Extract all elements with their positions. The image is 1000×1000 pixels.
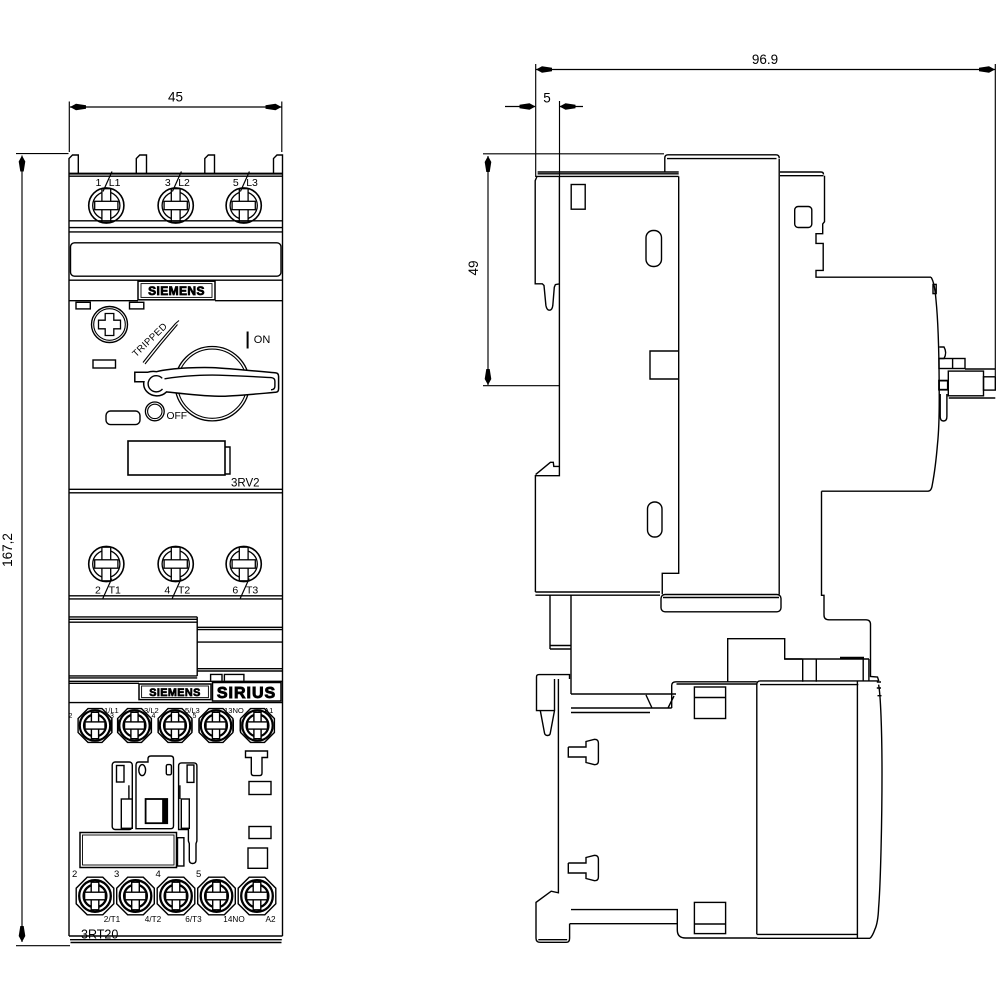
svg-text:3: 3: [165, 177, 171, 189]
svg-text:5: 5: [543, 91, 551, 106]
svg-text:L1: L1: [109, 177, 121, 189]
svg-text:2/T1: 2/T1: [104, 915, 121, 924]
svg-text:5: 5: [193, 713, 197, 720]
svg-text:L3: L3: [246, 177, 258, 189]
svg-text:SIEMENS: SIEMENS: [149, 687, 200, 699]
svg-text:6/T3: 6/T3: [185, 915, 202, 924]
svg-text:4: 4: [156, 869, 161, 880]
svg-text:5: 5: [233, 177, 239, 189]
svg-text:T1: T1: [109, 585, 121, 597]
svg-text:96.9: 96.9: [752, 52, 778, 67]
svg-text:167,2: 167,2: [0, 533, 15, 567]
svg-text:6: 6: [232, 585, 238, 597]
svg-text:45: 45: [168, 90, 183, 105]
svg-text:SIRIUS: SIRIUS: [217, 685, 276, 702]
svg-text:T3: T3: [246, 585, 258, 597]
svg-text:A2: A2: [265, 915, 275, 924]
svg-text:ON: ON: [254, 334, 271, 346]
svg-text:SIEMENS: SIEMENS: [148, 284, 205, 298]
svg-text:49: 49: [466, 260, 481, 275]
svg-text:2: 2: [95, 585, 101, 597]
svg-text:3: 3: [114, 869, 119, 880]
svg-text:4: 4: [152, 713, 156, 720]
svg-text:2: 2: [69, 713, 73, 720]
svg-text:2: 2: [72, 869, 77, 880]
svg-text:L2: L2: [178, 177, 190, 189]
svg-text:A1: A1: [264, 706, 273, 715]
svg-text:T2: T2: [178, 585, 190, 597]
svg-text:4/T2: 4/T2: [145, 915, 162, 924]
svg-text:4: 4: [164, 585, 170, 597]
svg-text:13NO: 13NO: [224, 706, 244, 715]
svg-text:3RV2: 3RV2: [231, 478, 260, 490]
svg-text:14NO: 14NO: [223, 915, 244, 924]
svg-text:1: 1: [96, 177, 102, 189]
svg-text:5: 5: [196, 869, 201, 880]
svg-text:3: 3: [110, 713, 114, 720]
svg-text:OFF: OFF: [167, 411, 188, 422]
